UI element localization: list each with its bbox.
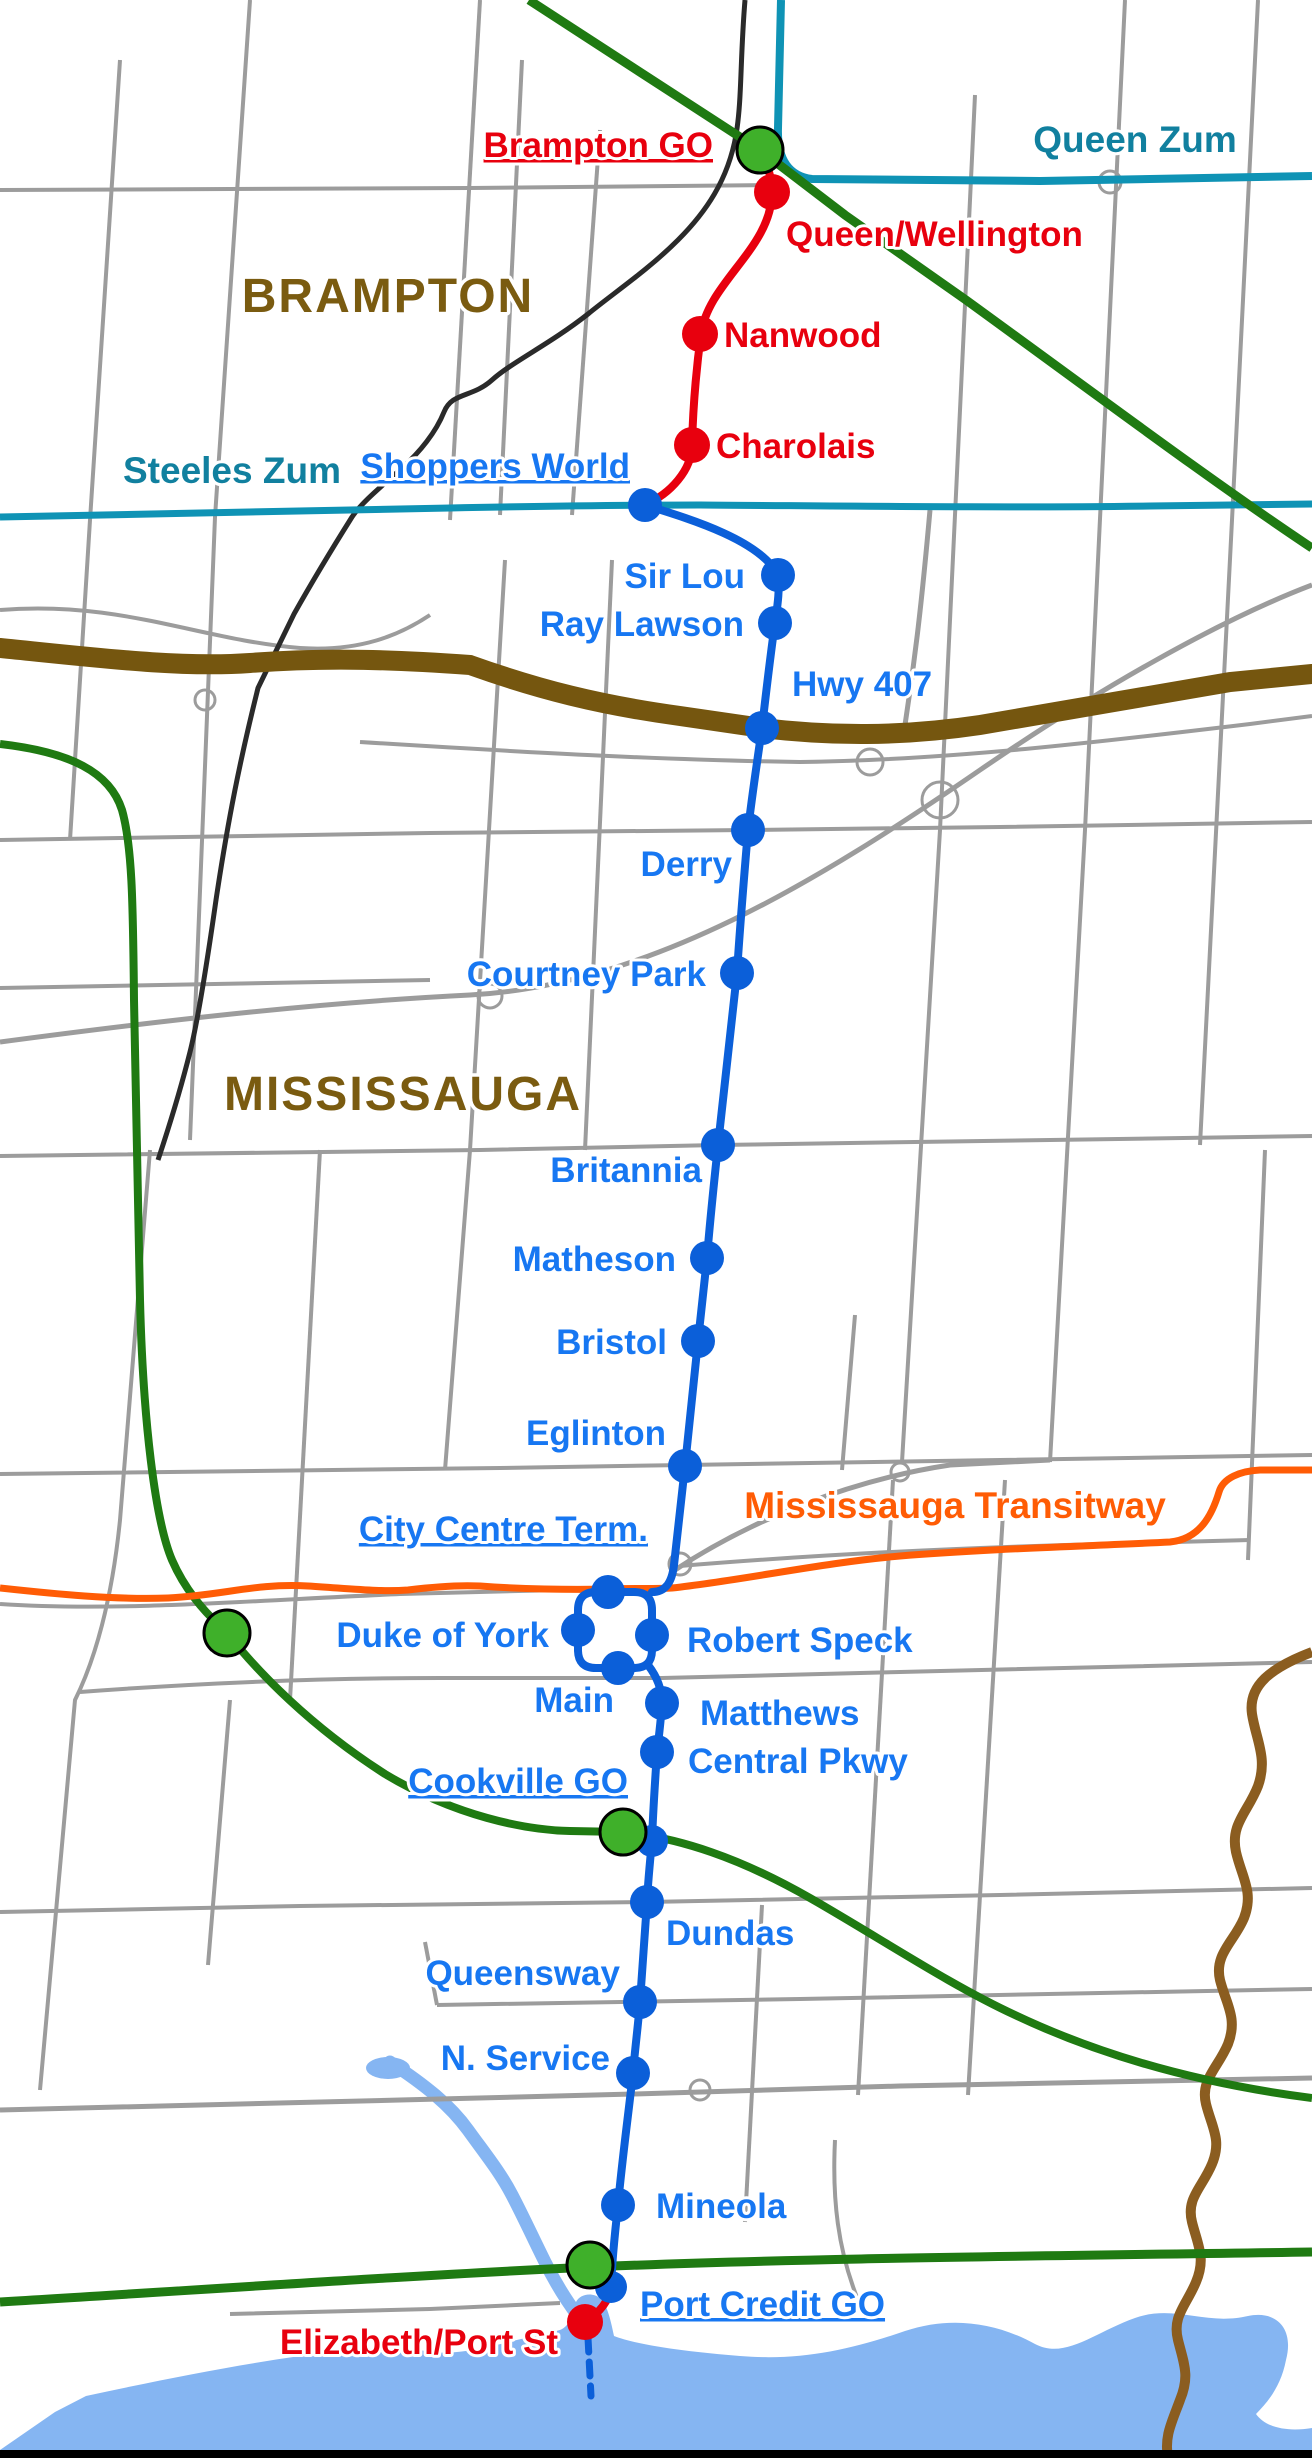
route-label-steeles-zum: Steeles Zum (123, 450, 341, 491)
station-label-ray-lawson: Ray Lawson (540, 605, 744, 644)
station-dot-duke-of-york (561, 1613, 595, 1647)
station-dot-sir-lou (761, 558, 795, 592)
region-label-brampton: BRAMPTON (242, 270, 534, 323)
route-label-queen-zum: Queen Zum (1033, 119, 1237, 160)
station-label-n-service: N. Service (441, 2039, 610, 2078)
station-dot-ray-lawson (758, 606, 792, 640)
station-label-central-pkwy: Central Pkwy (688, 1742, 908, 1781)
station-label-brampton-go: Brampton GO (484, 126, 713, 165)
station-label-courtney-park: Courtney Park (467, 955, 707, 994)
station-dot-britannia (701, 1128, 735, 1162)
station-dot-matthews (645, 1686, 679, 1720)
station-dot-mineola (601, 2188, 635, 2222)
station-label-nanwood: Nanwood (724, 316, 881, 355)
river-pond (366, 2057, 410, 2079)
station-dot-bristol (681, 1324, 715, 1358)
station-label-mineola: Mineola (656, 2187, 787, 2226)
station-dot-cookville-go (600, 1809, 646, 1855)
station-label-dundas: Dundas (666, 1914, 794, 1953)
station-dot-main (601, 1651, 635, 1685)
station-label-eglinton: Eglinton (526, 1414, 666, 1453)
station-dot-n-service (616, 2056, 650, 2090)
station-label-matheson: Matheson (513, 1240, 676, 1279)
station-dot-port-credit-go (567, 2242, 613, 2288)
station-label-britannia: Britannia (550, 1151, 702, 1190)
station-dot-eglinton (668, 1449, 702, 1483)
station-label-derry: Derry (641, 845, 733, 884)
route-label-transitway: Mississauga Transitway (744, 1485, 1166, 1526)
station-dot-brampton-go (737, 127, 783, 173)
go-station-dot (204, 1610, 250, 1656)
station-dot-city-centre-term (591, 1575, 625, 1609)
map-background (0, 0, 1312, 2458)
station-label-cookville-go: Cookville GO (408, 1762, 628, 1801)
station-dot-central-pkwy (640, 1735, 674, 1769)
station-label-city-centre-term: City Centre Term. (359, 1510, 648, 1549)
station-label-shoppers-world: Shoppers World (360, 447, 630, 486)
station-dot-matheson (690, 1241, 724, 1275)
region-label-mississauga: MISSISSAUGA (224, 1068, 582, 1121)
station-dot-charolais (674, 427, 710, 463)
station-label-elizabeth-port-st: Elizabeth/Port St (280, 2323, 558, 2362)
station-label-queensway: Queensway (425, 1954, 620, 1993)
map-border-bottom (0, 2450, 1312, 2458)
station-label-bristol: Bristol (556, 1323, 667, 1362)
station-label-sir-lou: Sir Lou (624, 557, 745, 596)
station-label-hwy-407: Hwy 407 (792, 665, 932, 704)
station-label-main: Main (534, 1681, 614, 1720)
station-dot-queensway (623, 1985, 657, 2019)
transit-map: BRAMPTON MISSISSAUGA Queen Zum Steeles Z… (0, 0, 1312, 2458)
station-dot-dundas (630, 1885, 664, 1919)
station-dot-courtney-park (720, 956, 754, 990)
station-label-duke-of-york: Duke of York (336, 1616, 549, 1655)
station-dot-nanwood (682, 316, 718, 352)
station-label-robert-speck: Robert Speck (687, 1621, 913, 1660)
station-label-matthews: Matthews (700, 1694, 859, 1733)
lrt-dashed-extension (588, 2338, 591, 2396)
station-dot-queen-wellington (754, 174, 790, 210)
station-label-queen-wellington: Queen/Wellington (786, 215, 1083, 254)
station-dot-elizabeth-port-st (567, 2304, 603, 2340)
station-label-port-credit-go: Port Credit GO (640, 2285, 885, 2324)
station-dot-shoppers-world (628, 488, 662, 522)
station-dot-robert-speck (635, 1618, 669, 1652)
station-dot-derry (731, 813, 765, 847)
station-dot-hwy-407 (745, 711, 779, 745)
station-label-charolais: Charolais (716, 427, 876, 466)
